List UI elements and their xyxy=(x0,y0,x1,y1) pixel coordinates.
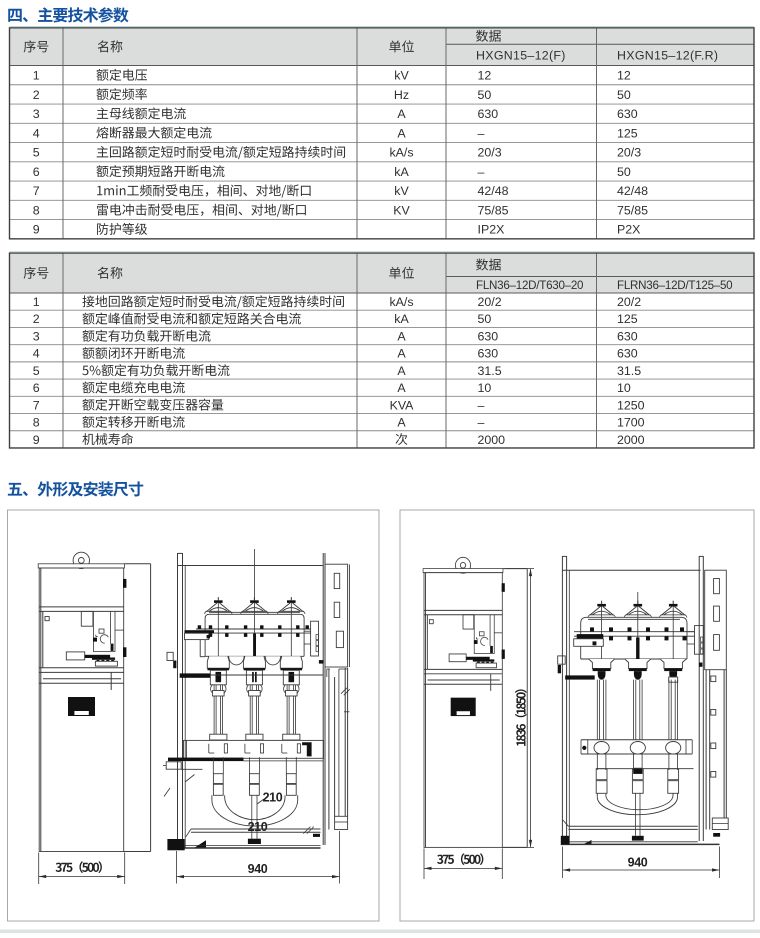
svg-text:3: 3 xyxy=(33,329,40,343)
svg-text:–: – xyxy=(478,416,485,430)
svg-text:4: 4 xyxy=(33,347,40,361)
svg-text:4: 4 xyxy=(33,126,40,140)
svg-text:50: 50 xyxy=(617,165,631,179)
svg-text:A: A xyxy=(397,107,406,121)
svg-text:12: 12 xyxy=(478,69,492,83)
svg-text:9: 9 xyxy=(33,223,40,237)
svg-text:A: A xyxy=(397,347,406,361)
svg-text:50: 50 xyxy=(478,88,492,102)
svg-text:kA: kA xyxy=(394,165,409,179)
svg-text:2000: 2000 xyxy=(617,433,645,447)
svg-text:940: 940 xyxy=(628,855,648,869)
svg-text:8: 8 xyxy=(33,203,40,217)
svg-text:20/2: 20/2 xyxy=(478,295,502,309)
svg-text:8: 8 xyxy=(33,416,40,430)
svg-text:A: A xyxy=(397,126,406,140)
svg-text:kV: kV xyxy=(394,184,409,198)
svg-text:5: 5 xyxy=(33,146,40,160)
svg-text:P2X: P2X xyxy=(617,223,640,237)
svg-text:kV: kV xyxy=(394,69,409,83)
svg-text:125: 125 xyxy=(617,126,638,140)
svg-text:75/85: 75/85 xyxy=(617,203,648,217)
svg-text:10: 10 xyxy=(478,381,492,395)
svg-text:20/3: 20/3 xyxy=(617,146,641,160)
svg-text:630: 630 xyxy=(617,107,638,121)
svg-text:2: 2 xyxy=(33,88,40,102)
svg-text:940: 940 xyxy=(248,862,268,876)
svg-text:42/48: 42/48 xyxy=(478,184,509,198)
svg-text:50: 50 xyxy=(478,312,492,326)
svg-text:20/2: 20/2 xyxy=(617,295,641,309)
svg-text:125: 125 xyxy=(617,312,638,326)
svg-text:1700: 1700 xyxy=(617,416,645,430)
svg-text:12: 12 xyxy=(617,69,631,83)
svg-text:kA/s: kA/s xyxy=(389,295,413,309)
svg-text:KVA: KVA xyxy=(390,398,415,412)
svg-text:A: A xyxy=(397,329,406,343)
svg-text:Hz: Hz xyxy=(394,88,409,102)
svg-text:KV: KV xyxy=(393,203,410,217)
svg-text:A: A xyxy=(397,381,406,395)
svg-text:–: – xyxy=(478,398,485,412)
svg-text:1: 1 xyxy=(33,69,40,83)
svg-text:20/3: 20/3 xyxy=(478,146,502,160)
svg-text:42/48: 42/48 xyxy=(617,184,648,198)
svg-text:1250: 1250 xyxy=(617,398,645,412)
svg-text:FLRN36–12D/T125–50: FLRN36–12D/T125–50 xyxy=(617,279,732,292)
svg-text:A: A xyxy=(397,416,406,430)
svg-text:31.5: 31.5 xyxy=(617,364,641,378)
svg-text:kA/s: kA/s xyxy=(389,146,413,160)
svg-text:630: 630 xyxy=(478,107,499,121)
svg-text:kA: kA xyxy=(394,312,409,326)
svg-text:1: 1 xyxy=(33,295,40,309)
svg-text:3: 3 xyxy=(33,107,40,121)
svg-text:630: 630 xyxy=(478,347,499,361)
svg-text:10: 10 xyxy=(617,381,631,395)
svg-text:2: 2 xyxy=(33,312,40,326)
svg-text:A: A xyxy=(397,364,406,378)
svg-text:HXGN15–12(F.R): HXGN15–12(F.R) xyxy=(617,48,718,62)
svg-text:–: – xyxy=(478,165,485,179)
svg-text:50: 50 xyxy=(617,88,631,102)
svg-text:630: 630 xyxy=(617,347,638,361)
svg-text:7: 7 xyxy=(33,398,40,412)
svg-text:IP2X: IP2X xyxy=(478,223,505,237)
svg-text:31.5: 31.5 xyxy=(478,364,502,378)
svg-text:2000: 2000 xyxy=(478,433,506,447)
svg-text:9: 9 xyxy=(33,433,40,447)
svg-text:75/85: 75/85 xyxy=(478,203,509,217)
svg-text:210: 210 xyxy=(263,790,283,804)
svg-text:–: – xyxy=(478,126,485,140)
svg-text:5: 5 xyxy=(33,364,40,378)
svg-text:630: 630 xyxy=(478,329,499,343)
svg-text:6: 6 xyxy=(33,381,40,395)
svg-text:FLN36–12D/T630–20: FLN36–12D/T630–20 xyxy=(476,279,583,292)
svg-text:HXGN15–12(F): HXGN15–12(F) xyxy=(476,48,566,62)
svg-text:630: 630 xyxy=(617,329,638,343)
svg-text:6: 6 xyxy=(33,165,40,179)
svg-text:7: 7 xyxy=(33,184,40,198)
